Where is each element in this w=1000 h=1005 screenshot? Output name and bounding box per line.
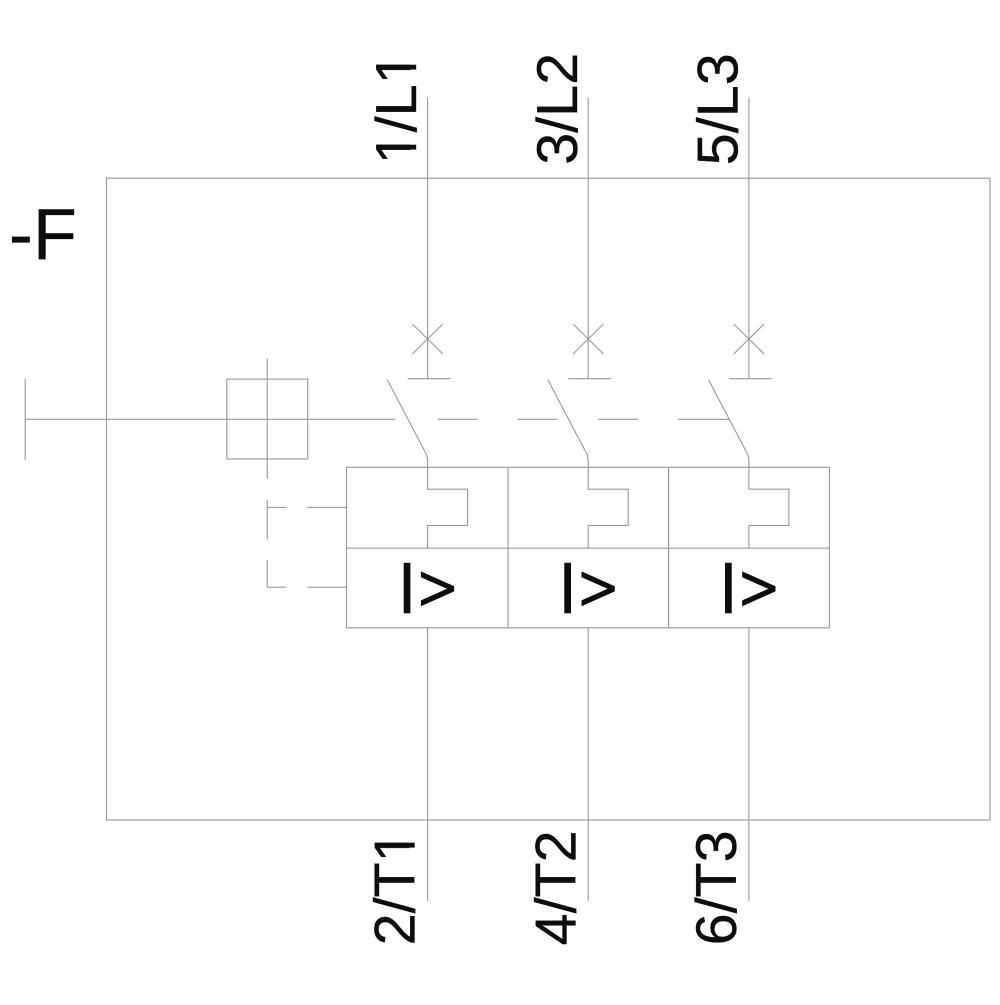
svg-text:6/T3: 6/T3: [685, 830, 749, 945]
svg-text:3/L2: 3/L2: [526, 53, 590, 165]
svg-text:-F: -F: [9, 195, 77, 275]
svg-text:1/L1: 1/L1: [365, 52, 429, 164]
svg-text:2/T1: 2/T1: [364, 830, 428, 945]
svg-text:5/L3: 5/L3: [687, 53, 751, 165]
svg-text:4/T2: 4/T2: [524, 830, 588, 945]
